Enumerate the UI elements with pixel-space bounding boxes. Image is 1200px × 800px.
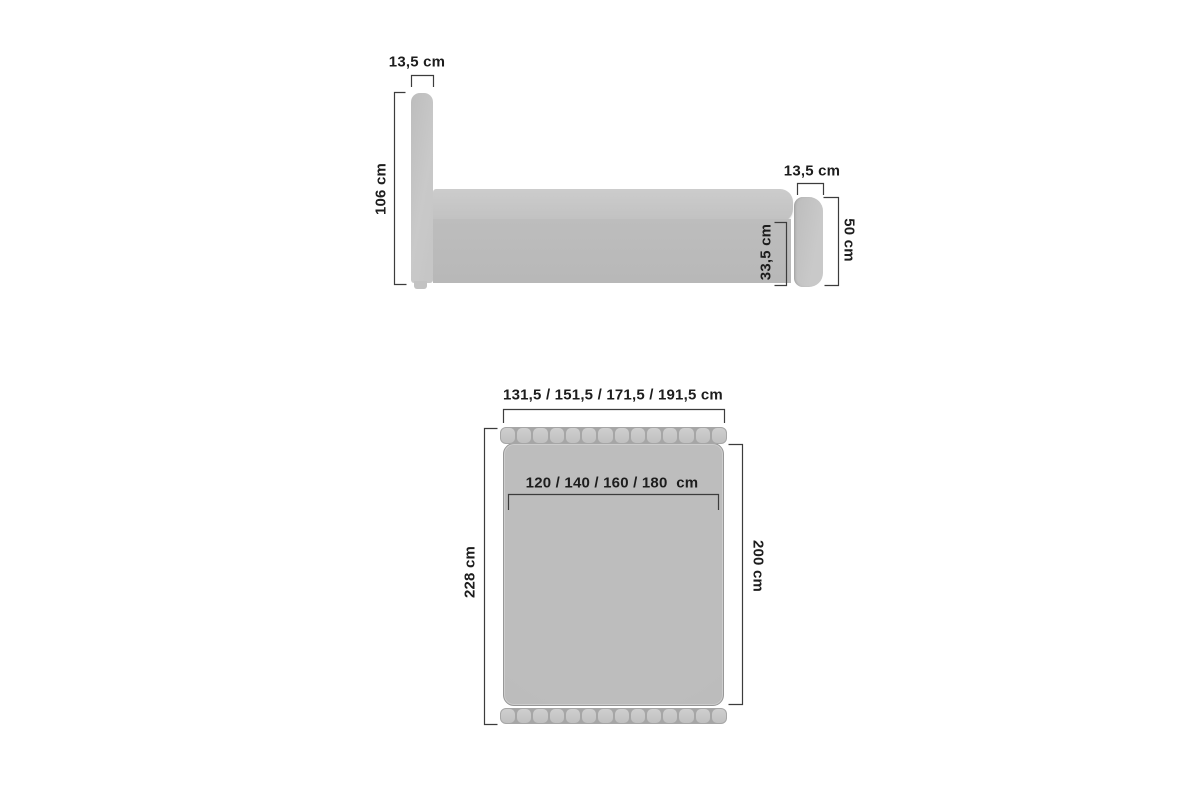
dim-line-footboard-thickness	[798, 184, 824, 196]
footboard-height-label: 50 cm	[842, 218, 857, 262]
footboard-thickness-label: 13,5 cm	[784, 164, 840, 179]
dim-line-mattress-length	[729, 445, 743, 705]
dim-line-overall-length	[485, 429, 498, 725]
headboard-height-label: 106 cm	[374, 163, 389, 215]
dim-line-overall-width	[504, 410, 725, 424]
mattress-length-label: 200 cm	[751, 540, 766, 592]
dim-line-headboard-thickness	[412, 76, 434, 88]
dim-line-mattress-width	[509, 495, 719, 511]
headboard-thickness-label: 13,5 cm	[389, 55, 445, 70]
base-height-label: 33,5 cm	[759, 224, 774, 280]
dim-line-footboard-height	[824, 198, 839, 286]
diagram-canvas: 13,5 cm 106 cm 13,5 cm 50 cm 33,5 cm 131…	[0, 0, 1200, 800]
dim-line-headboard-height	[395, 93, 407, 285]
mattress-width-label: 120 / 140 / 160 / 180 cm	[526, 476, 699, 491]
overall-width-label: 131,5 / 151,5 / 171,5 / 191,5 cm	[503, 388, 723, 403]
dim-line-base-height	[775, 223, 787, 286]
overall-length-label: 228 cm	[463, 546, 478, 598]
